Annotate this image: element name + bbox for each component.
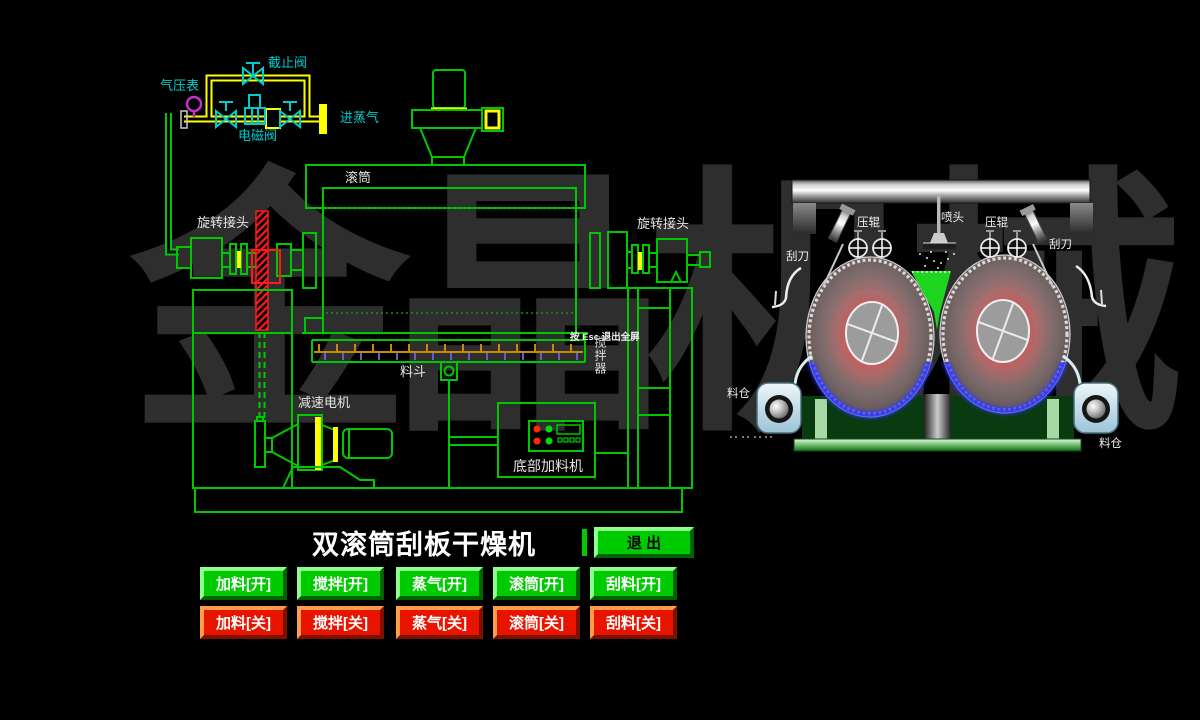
dryer-schematic: 气压表 截止阀 电磁阀 进蒸气 滚筒 旋转接头 旋转接头 料斗 减速电机 底部加… bbox=[140, 40, 720, 530]
rotary-joint-left bbox=[177, 233, 316, 288]
support-left bbox=[193, 290, 292, 488]
rotary-joint-right-label: 旋转接头 bbox=[637, 216, 689, 231]
feeder-indicator-lights bbox=[534, 426, 553, 445]
bin-left-label: 料仓 bbox=[727, 386, 750, 400]
green-light-icon bbox=[546, 438, 553, 445]
drum-body bbox=[306, 165, 585, 333]
feed-on-button[interactable]: 加料[开] bbox=[200, 567, 287, 600]
scrape-off-button[interactable]: 刮料[关] bbox=[590, 606, 677, 639]
pressure-gauge-icon bbox=[187, 97, 201, 117]
agitate-off-button[interactable]: 搅拌[关] bbox=[297, 606, 384, 639]
green-light-icon bbox=[546, 426, 553, 433]
belt-drive bbox=[252, 211, 280, 418]
steam-inlet-label: 进蒸气 bbox=[340, 110, 379, 125]
spray-head-icon bbox=[919, 196, 956, 269]
press-roller-icon bbox=[873, 231, 891, 257]
spray-head-label: 喷头 bbox=[941, 211, 964, 224]
hmi-screen: 金晶机械 bbox=[0, 0, 1200, 720]
rotary-joint-right bbox=[590, 232, 710, 288]
press-roller-left-label: 压辊 bbox=[857, 215, 880, 229]
scrape-on-button[interactable]: 刮料[开] bbox=[590, 567, 677, 600]
condensate-pipe bbox=[169, 113, 180, 252]
steam-on-button[interactable]: 蒸气[开] bbox=[396, 567, 483, 600]
press-roller-icon bbox=[981, 231, 999, 257]
pressure-gauge-label: 气压表 bbox=[160, 78, 199, 93]
drum-off-button[interactable]: 滚筒[关] bbox=[493, 606, 580, 639]
scraper-right-label: 刮刀 bbox=[1049, 237, 1072, 251]
press-roller-right-label: 压辊 bbox=[985, 215, 1008, 229]
inlet-valve-left-icon bbox=[216, 102, 236, 127]
gear-motor-label: 减速电机 bbox=[298, 395, 350, 410]
machine-base bbox=[195, 488, 682, 512]
stop-valve-label: 截止阀 bbox=[268, 55, 307, 70]
support-right bbox=[595, 288, 692, 488]
exit-button[interactable]: 退 出 bbox=[594, 527, 694, 558]
press-roller-icon bbox=[1008, 231, 1026, 257]
press-roller-icon bbox=[849, 231, 867, 257]
gear-motor bbox=[255, 415, 392, 488]
red-light-icon bbox=[534, 426, 541, 433]
page-title: 双滚筒刮板干燥机 bbox=[284, 526, 564, 558]
rake bbox=[314, 344, 583, 360]
steam-pipe bbox=[181, 78, 327, 134]
feed-off-button[interactable]: 加料[关] bbox=[200, 606, 287, 639]
steam-off-button[interactable]: 蒸气[关] bbox=[396, 606, 483, 639]
drum-on-button[interactable]: 滚筒[开] bbox=[493, 567, 580, 600]
exit-button-edge bbox=[582, 529, 587, 556]
solenoid-valve-label: 电磁阀 bbox=[238, 128, 277, 143]
drum-label: 滚筒 bbox=[345, 170, 371, 185]
bin-right-label: 料仓 bbox=[1099, 436, 1122, 450]
agitator-label: 搅拌器 bbox=[592, 336, 609, 375]
inlet-valve-right-icon bbox=[280, 102, 300, 127]
scraper-left-label: 刮刀 bbox=[786, 249, 809, 263]
agitate-on-button[interactable]: 搅拌[开] bbox=[297, 567, 384, 600]
hopper-label: 料斗 bbox=[400, 364, 426, 379]
rotary-joint-left-label: 旋转接头 bbox=[197, 215, 249, 230]
double-drum-view: 压辊 喷头 压辊 刮刀 刮刀 料仓 料仓 bbox=[715, 170, 1145, 460]
top-feeder-cyclone bbox=[412, 70, 503, 165]
dots-row bbox=[730, 436, 772, 438]
red-light-icon bbox=[534, 438, 541, 445]
bottom-feeder-label: 底部加料机 bbox=[513, 458, 583, 474]
